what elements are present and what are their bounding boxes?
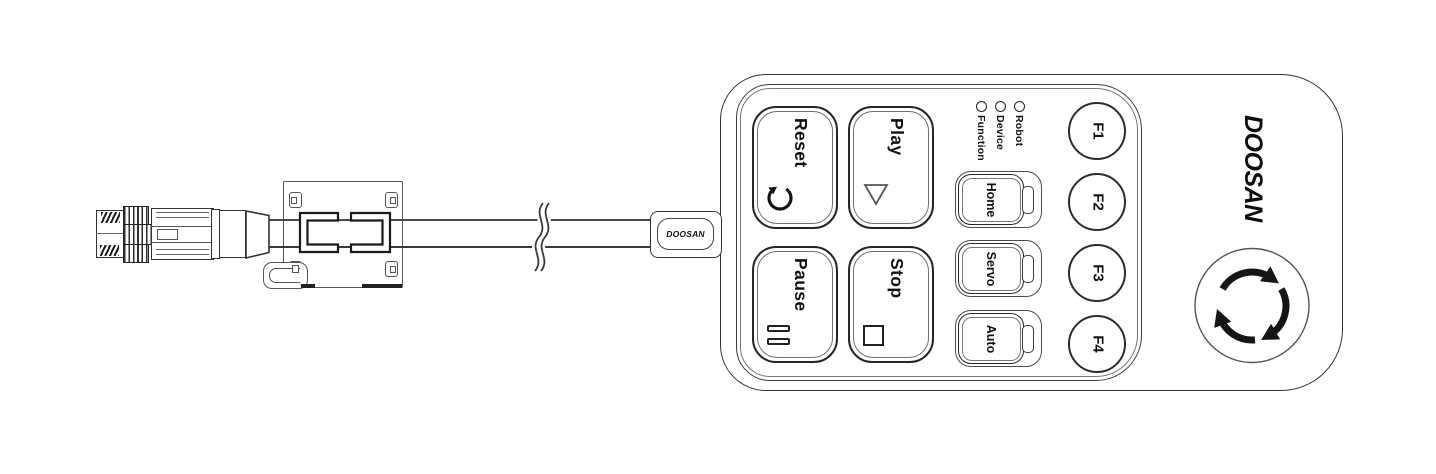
function-button-f4[interactable]: F4	[1068, 315, 1126, 373]
function-button-f1[interactable]: F1	[1068, 102, 1126, 160]
status-led-icon	[976, 101, 987, 112]
pause-bars-icon	[767, 325, 790, 345]
led-label: Robot	[1013, 115, 1025, 146]
clamp-foot	[362, 284, 402, 288]
home-button-label: Home	[984, 182, 998, 217]
twist-release-arrows-icon	[1192, 247, 1312, 365]
coupling-nut-ring	[123, 224, 154, 245]
cable	[268, 219, 650, 221]
auto-button-label: Auto	[984, 324, 998, 352]
mode-button-servo-group: Servo	[955, 240, 1042, 297]
diagram-canvas: DOOSAN Reset Play Pause	[0, 0, 1436, 474]
clamp-corner-tab-notch	[390, 266, 396, 273]
led-label: Function	[975, 115, 987, 161]
pause-button-label: Pause	[790, 258, 811, 312]
connector-thread-icon	[100, 245, 119, 256]
play-triangle-icon	[862, 183, 890, 207]
home-button[interactable]: Home	[958, 174, 1024, 225]
connector-rear	[219, 210, 246, 258]
stop-button-label: Stop	[886, 258, 907, 298]
mode-button-auto-group: Auto	[955, 310, 1042, 367]
auto-button[interactable]: Auto	[958, 313, 1024, 364]
connector-body-rail	[156, 212, 209, 218]
status-led-icon	[995, 101, 1006, 112]
servo-button[interactable]: Servo	[958, 243, 1024, 294]
cable-brand-plate: DOOSAN	[657, 218, 714, 250]
cable-break-icon	[535, 202, 549, 272]
status-led-icon	[1014, 101, 1025, 112]
mode-led-slot-icon	[1022, 255, 1034, 283]
f2-label: F2	[1090, 193, 1107, 211]
mode-led-slot-icon	[1022, 325, 1034, 353]
cable	[268, 246, 650, 248]
function-button-f2[interactable]: F2	[1068, 173, 1126, 231]
status-led-robot: Robot	[1009, 101, 1029, 146]
clamp-corner-tab-notch	[390, 197, 396, 204]
play-button-label: Play	[886, 118, 907, 156]
connector-body-rail	[156, 249, 209, 255]
reset-button[interactable]: Reset	[752, 106, 838, 229]
cable-brand-label: DOOSAN	[666, 229, 705, 239]
play-button[interactable]: Play	[848, 106, 934, 229]
led-label: Device	[994, 115, 1006, 150]
function-button-f3[interactable]: F3	[1068, 244, 1126, 302]
clamp-corner-tab-notch	[291, 197, 297, 204]
stop-button[interactable]: Stop	[848, 246, 934, 363]
stop-square-icon	[863, 325, 884, 346]
connector-key	[157, 229, 178, 240]
mode-button-home-group: Home	[955, 171, 1042, 228]
reset-button-label: Reset	[790, 118, 811, 168]
f1-label: F1	[1090, 122, 1107, 140]
status-led-function: Function	[971, 101, 991, 161]
strain-relief-boot	[246, 211, 269, 258]
status-led-device: Device	[990, 101, 1010, 150]
clamp-foot	[301, 284, 315, 288]
connector-thread-icon	[101, 212, 120, 223]
servo-button-label: Servo	[984, 251, 998, 286]
estop-button[interactable]	[1192, 247, 1312, 365]
f3-label: F3	[1090, 264, 1107, 282]
mode-led-slot-icon	[1022, 186, 1034, 214]
clamp-latch-notch	[292, 265, 299, 273]
connector-face-line	[96, 233, 125, 234]
f4-label: F4	[1090, 335, 1107, 353]
brand-logo: DOOSAN	[1238, 115, 1267, 222]
pause-button[interactable]: Pause	[752, 246, 838, 363]
reset-arrow-icon	[764, 181, 796, 215]
